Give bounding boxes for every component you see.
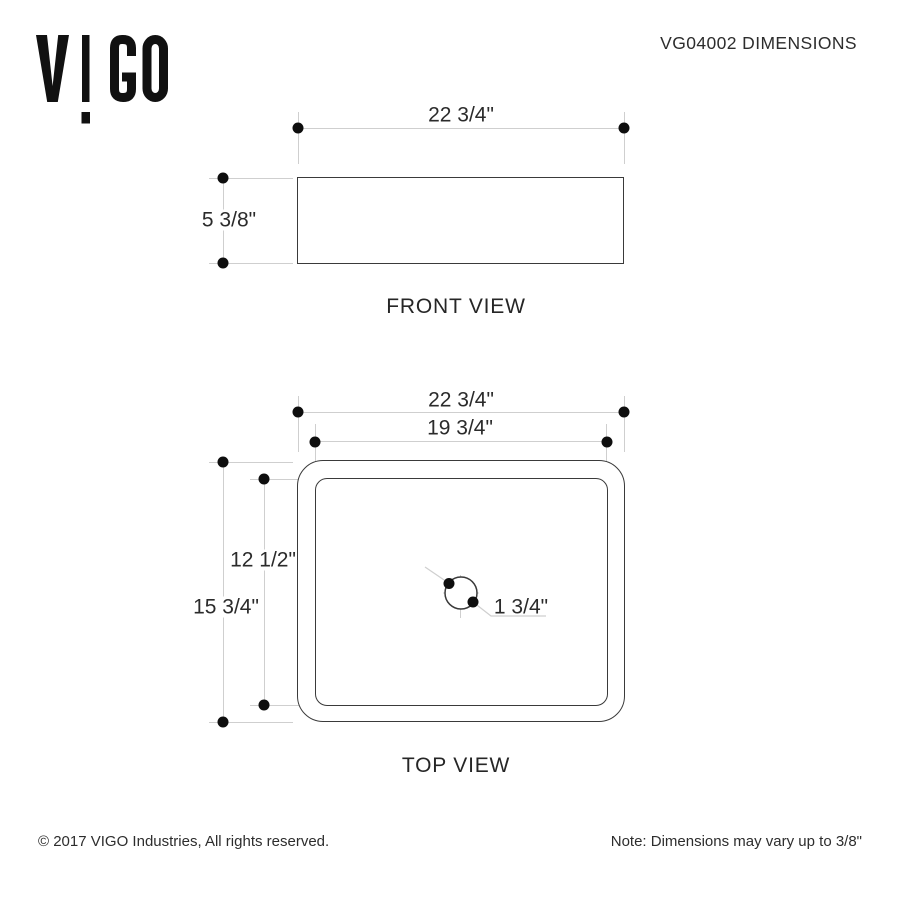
dimension-endpoint-dot	[310, 436, 321, 447]
dimension-endpoint-dot	[259, 700, 270, 711]
dimension-endpoint-dot	[218, 457, 229, 468]
top-inner-depth-dimension-label: 12 1/2"	[227, 550, 299, 571]
top-outer-depth-dimension-label: 15 3/4"	[190, 597, 262, 618]
sink-front-outline	[297, 177, 624, 264]
logo-letter-i-dot	[82, 112, 91, 124]
dimension-endpoint-dot	[293, 123, 304, 134]
dimension-endpoint-dot	[619, 407, 630, 418]
dimension-line-top-outer-width	[298, 412, 624, 413]
extension-line	[624, 112, 625, 164]
dimensions-sheet: VG04002 DIMENSIONS 22 3/4" 5 3/8" FRONT …	[0, 0, 900, 900]
dimension-line-top-inner-depth	[264, 479, 265, 705]
logo-letter-o	[147, 40, 164, 98]
front-height-dimension-label: 5 3/8"	[199, 210, 259, 231]
extension-line	[298, 112, 299, 164]
top-outer-width-dimension-label: 22 3/4"	[425, 390, 497, 411]
dimensions-note-text: Note: Dimensions may vary up to 3/8"	[611, 833, 862, 850]
top-inner-width-dimension-label: 19 3/4"	[424, 418, 496, 439]
drain-dimension-label: 1 3/4"	[491, 597, 551, 618]
dimension-endpoint-dot	[293, 407, 304, 418]
dimension-endpoint-dot	[218, 173, 229, 184]
top-view-caption: TOP VIEW	[402, 754, 510, 778]
extension-line	[624, 396, 625, 452]
logo-letter-g	[115, 40, 132, 98]
vigo-logo	[36, 35, 168, 124]
dimension-line-top-inner-width	[315, 441, 606, 442]
dimension-endpoint-dot	[601, 436, 612, 447]
page-title: VG04002 DIMENSIONS	[660, 33, 857, 54]
dimension-line-top-outer-depth	[223, 462, 224, 722]
dimension-endpoint-dot	[619, 123, 630, 134]
copyright-text: © 2017 VIGO Industries, All rights reser…	[38, 833, 329, 850]
front-view-caption: FRONT VIEW	[386, 295, 525, 319]
dimension-endpoint-dot	[218, 258, 229, 269]
dimension-endpoint-dot	[444, 578, 455, 589]
front-width-dimension-label: 22 3/4"	[425, 105, 497, 126]
dimension-endpoint-dot	[259, 474, 270, 485]
logo-letter-i-stem	[82, 35, 90, 102]
dimension-line-front-width	[298, 128, 624, 129]
dimension-endpoint-dot	[468, 597, 479, 608]
dimension-endpoint-dot	[218, 717, 229, 728]
logo-letter-v	[36, 35, 69, 102]
extension-line	[298, 396, 299, 452]
